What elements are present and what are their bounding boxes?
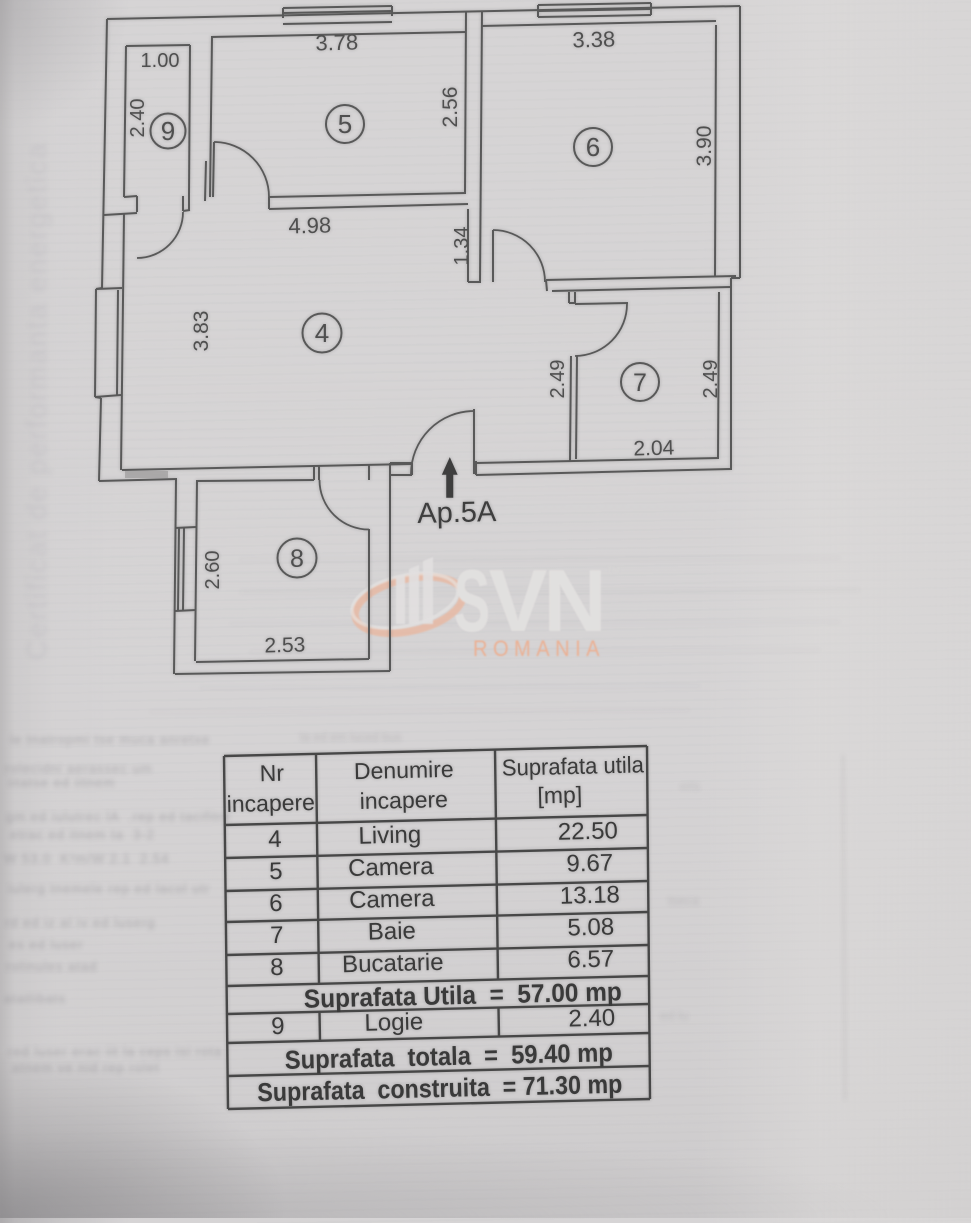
svg-text:atatlibats: atatlibats — [4, 991, 66, 1006]
svg-text:9.67: 9.67 — [566, 849, 613, 877]
svg-text:atnem ve nid rep rolet: atnem ve nid rep rolet — [12, 1060, 160, 1075]
svg-text:22.50: 22.50 — [557, 817, 618, 845]
svg-text:8: 8 — [270, 954, 284, 981]
svg-text:iulerg tnemele rep ed lacol ut: iulerg tnemele rep ed lacol utr — [8, 881, 210, 896]
svg-text:4: 4 — [315, 318, 329, 348]
svg-text:incapere: incapere — [226, 789, 315, 817]
svg-text:Living: Living — [358, 821, 421, 849]
svg-text:Denumire: Denumire — [354, 756, 454, 784]
svg-text:Ap.5A: Ap.5A — [417, 496, 497, 530]
svg-text:rolecidni aerassec um: rolecidni aerassec um — [5, 761, 152, 776]
svg-text:9: 9 — [161, 116, 175, 146]
svg-text:2.49: 2.49 — [700, 360, 722, 399]
svg-text:1.00: 1.00 — [141, 50, 180, 72]
svg-text:es ed luser: es ed luser — [9, 937, 84, 952]
svg-text:3.78: 3.78 — [315, 29, 358, 55]
svg-text:Nr: Nr — [259, 760, 284, 787]
svg-text:2.49: 2.49 — [547, 360, 569, 399]
svg-text:8: 8 — [290, 545, 304, 573]
svg-text:etrac ed itnem ta 3-2: etrac ed itnem ta 3-2 — [10, 827, 155, 842]
svg-text:rolinules atad: rolinules atad — [6, 959, 97, 974]
svg-text:Camera: Camera — [349, 885, 436, 914]
svg-text:ta ed em luced bus: ta ed em luced bus — [300, 730, 401, 744]
svg-text:2.04: 2.04 — [633, 436, 675, 460]
svg-text:rd ed iz al iv ed luserg: rd ed iz al iv ed luserg — [5, 915, 155, 930]
svg-text:iitatse ed iitnem: iitatse ed iitnem — [8, 775, 115, 790]
svg-text:2.40: 2.40 — [568, 1004, 615, 1032]
svg-text:le tnatropmi tse muca anretxe: le tnatropmi tse muca anretxe — [10, 732, 210, 747]
svg-text:ed lu: ed lu — [660, 1008, 688, 1023]
svg-text:gm ed iulutrec lA .rep ed tac: gm ed iulutrec lA .rep ed tacifitre — [6, 809, 231, 824]
svg-text:2.40: 2.40 — [127, 99, 149, 138]
svg-text:3.90: 3.90 — [693, 126, 716, 167]
svg-text:3.83: 3.83 — [190, 311, 213, 352]
svg-text:Certificat de performanta ener: Certificat de performanta energetica — [21, 141, 52, 660]
svg-text:7: 7 — [270, 922, 284, 949]
svg-text:7: 7 — [633, 369, 647, 397]
svg-text:1.34: 1.34 — [451, 227, 473, 266]
svg-text:incapere: incapere — [359, 786, 448, 814]
svg-text:ROMANIA: ROMANIA — [473, 636, 605, 661]
svg-text:red luser erac iit la ceps isi: red luser erac iit la ceps isi rota — [8, 1044, 222, 1059]
svg-text:13.18: 13.18 — [559, 881, 620, 909]
svg-text:2.53: 2.53 — [264, 633, 305, 657]
svg-text:5: 5 — [269, 858, 283, 885]
svg-text:Baie: Baie — [367, 917, 416, 945]
svg-text:Suprafata utila: Suprafata utila — [502, 751, 645, 780]
svg-text:6: 6 — [586, 132, 600, 162]
svg-text:Camera: Camera — [348, 853, 435, 882]
svg-text:4.98: 4.98 — [288, 212, 331, 238]
svg-text:Bucatarie: Bucatarie — [342, 949, 444, 978]
svg-text:2.60: 2.60 — [202, 551, 224, 590]
svg-text:W 53.0 K²m/W 2.1 2.54: W 53.0 K²m/W 2.1 2.54 — [4, 851, 169, 866]
svg-text:4: 4 — [268, 826, 282, 853]
svg-text:6.57: 6.57 — [567, 945, 614, 973]
svg-text:Logie: Logie — [364, 1008, 423, 1036]
svg-text:2.56: 2.56 — [439, 87, 462, 128]
svg-text:9: 9 — [271, 1013, 285, 1040]
svg-text:3.38: 3.38 — [572, 26, 615, 52]
svg-text:TM: TM — [607, 565, 620, 575]
svg-text:6: 6 — [269, 890, 283, 917]
svg-text:5: 5 — [338, 109, 352, 139]
svg-text:5.08: 5.08 — [567, 913, 614, 941]
svg-text:erts: erts — [680, 779, 700, 793]
svg-text:tseca: tseca — [668, 893, 700, 908]
svg-text:[mp]: [mp] — [537, 781, 582, 808]
